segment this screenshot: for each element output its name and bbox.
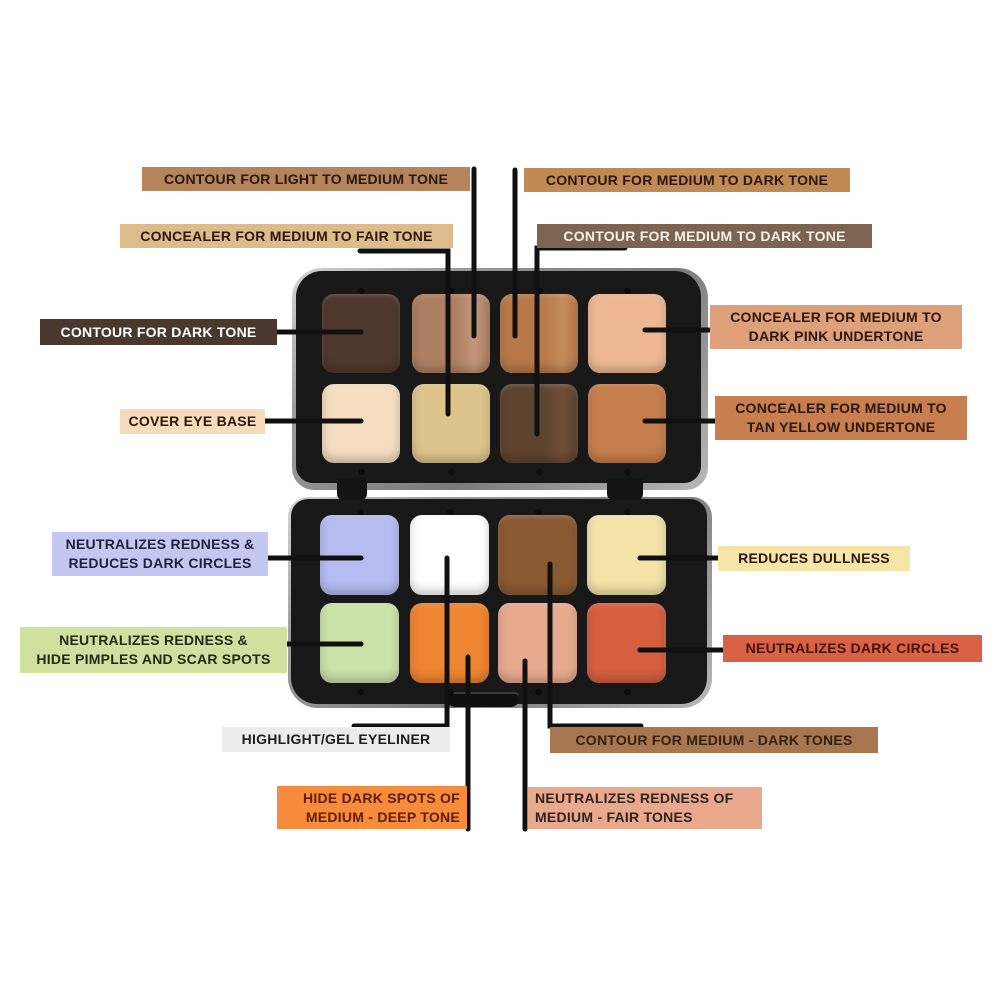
clasp <box>447 692 519 707</box>
pan-contour-for-dark-tone <box>322 294 400 373</box>
label-text-line: TAN YELLOW UNDERTONE <box>747 418 936 437</box>
pan-concealer-for-medium-to-fair-tone <box>412 384 490 463</box>
pan-cover-eye-base <box>322 384 400 463</box>
rivet-dot <box>535 689 542 695</box>
rivet-dot <box>358 469 365 475</box>
label-concealer-medium-fair-tone: CONCEALER FOR MEDIUM TO FAIR TONE <box>120 224 453 248</box>
label-contour-light-medium-tone: CONTOUR FOR LIGHT TO MEDIUM TONE <box>142 167 470 191</box>
rivet-dot <box>357 509 364 515</box>
pan-neutralizes-dark-circles <box>587 603 666 683</box>
label-text-line: CONTOUR FOR DARK TONE <box>60 323 256 342</box>
rivet-dot <box>536 469 543 475</box>
hinge-tab-left <box>337 478 367 500</box>
label-text-line: HIDE DARK SPOTS OF <box>303 789 460 808</box>
label-neutralizes-redness-pimples: NEUTRALIZES REDNESS &HIDE PIMPLES AND SC… <box>20 627 287 673</box>
label-text-line: CONTOUR FOR LIGHT TO MEDIUM TONE <box>164 170 448 189</box>
label-text-line: CONCEALER FOR MEDIUM TO FAIR TONE <box>140 227 432 246</box>
rivet-dot <box>357 689 364 695</box>
pan-contour-for-medium-dark-tones <box>498 515 577 595</box>
rivet-dot <box>448 469 455 475</box>
label-highlight-gel-eyeliner: HIGHLIGHT/GEL EYELINER <box>222 727 450 752</box>
label-text-line: COVER EYE BASE <box>129 412 257 431</box>
label-text-line: NEUTRALIZES DARK CIRCLES <box>746 639 960 658</box>
label-text-line: DARK PINK UNDERTONE <box>749 327 924 346</box>
rivet-dot <box>624 469 631 475</box>
pan-concealer-for-medium-to-dark-pink-undertone <box>588 294 666 373</box>
label-hide-dark-spots: HIDE DARK SPOTS OFMEDIUM - DEEP TONE <box>277 786 467 829</box>
label-text-line: CONCEALER FOR MEDIUM TO <box>730 308 942 327</box>
label-text-line: CONTOUR FOR MEDIUM - DARK TONES <box>575 731 852 750</box>
label-neutralizes-redness-fair: NEUTRALIZES REDNESS OFMEDIUM - FAIR TONE… <box>528 787 762 829</box>
rivet-dot <box>536 288 543 294</box>
label-contour-medium-dark-tone-2: CONTOUR FOR MEDIUM TO DARK TONE <box>537 224 872 248</box>
pan-contour-for-medium-to-dark-tone <box>500 294 578 373</box>
pan-neutralizes-redness-medium-fair <box>498 603 577 683</box>
label-neutralizes-dark-circles: NEUTRALIZES DARK CIRCLES <box>723 635 982 662</box>
label-text-line: NEUTRALIZES REDNESS OF <box>535 789 733 808</box>
label-concealer-dark-pink-undertone: CONCEALER FOR MEDIUM TODARK PINK UNDERTO… <box>710 305 962 349</box>
hinge-tab-right <box>607 478 643 500</box>
label-text-line: CONTOUR FOR MEDIUM TO DARK TONE <box>563 227 845 246</box>
label-text-line: NEUTRALIZES REDNESS & <box>59 631 248 650</box>
pan-contour-for-light-to-medium-tone <box>412 294 490 373</box>
rivet-dot <box>447 509 454 515</box>
pan-neutralizes-redness-hide-pimples <box>320 603 399 683</box>
label-text-line: MEDIUM - DEEP TONE <box>306 808 460 827</box>
rivet-dot <box>448 288 455 294</box>
label-text-line: HIDE PIMPLES AND SCAR SPOTS <box>36 650 270 669</box>
pan-reduces-dullness <box>587 515 666 595</box>
label-text-line: REDUCES DARK CIRCLES <box>68 554 251 573</box>
rivet-dot <box>447 689 454 695</box>
rivet-dot <box>535 509 542 515</box>
pan-highlight-gel-eyeliner <box>410 515 489 595</box>
rivet-dot <box>624 288 631 294</box>
label-text-line: NEUTRALIZES REDNESS & <box>66 535 255 554</box>
label-text-line: REDUCES DULLNESS <box>738 549 890 568</box>
label-contour-dark-tone: CONTOUR FOR DARK TONE <box>40 319 277 345</box>
label-cover-eye-base: COVER EYE BASE <box>120 409 265 434</box>
label-contour-medium-dark-tone-1: CONTOUR FOR MEDIUM TO DARK TONE <box>524 168 850 192</box>
label-contour-medium-dark-tones: CONTOUR FOR MEDIUM - DARK TONES <box>550 727 878 753</box>
concealer-palette-infographic: CONTOUR FOR LIGHT TO MEDIUM TONECONTOUR … <box>0 0 1000 1000</box>
label-neutralizes-redness-dark-circles: NEUTRALIZES REDNESS &REDUCES DARK CIRCLE… <box>52 532 268 576</box>
label-text-line: HIGHLIGHT/GEL EYELINER <box>242 730 431 749</box>
rivet-dot <box>624 689 631 695</box>
pan-contour-for-medium-to-dark-tone-deep <box>500 384 578 463</box>
pan-concealer-for-medium-to-tan-yellow-undertone <box>588 384 666 463</box>
pan-hide-dark-spots <box>410 603 489 683</box>
label-text-line: CONCEALER FOR MEDIUM TO <box>735 399 947 418</box>
pan-neutralizes-redness-reduces-dark-circles <box>320 515 399 595</box>
label-reduces-dullness: REDUCES DULLNESS <box>718 546 910 571</box>
label-text-line: MEDIUM - FAIR TONES <box>535 808 693 827</box>
label-concealer-tan-yellow-undertone: CONCEALER FOR MEDIUM TOTAN YELLOW UNDERT… <box>715 396 967 440</box>
label-text-line: CONTOUR FOR MEDIUM TO DARK TONE <box>546 171 828 190</box>
rivet-dot <box>358 288 365 294</box>
rivet-dot <box>624 509 631 515</box>
